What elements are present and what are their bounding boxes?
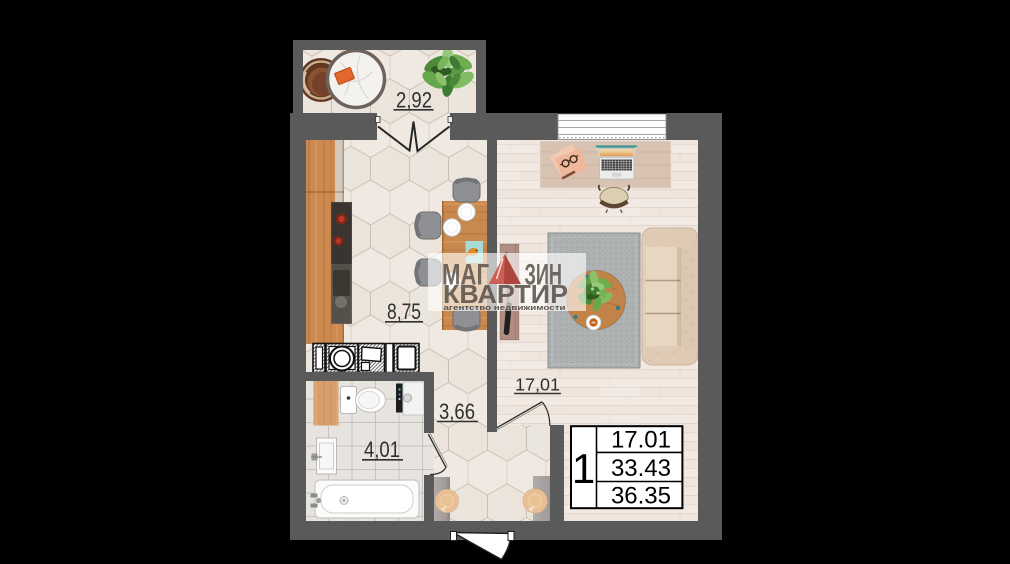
svg-text:33.43: 33.43 [611, 455, 671, 482]
svg-text:4,01: 4,01 [364, 437, 400, 462]
svg-text:17,01: 17,01 [515, 375, 560, 395]
svg-text:8,75: 8,75 [387, 299, 421, 324]
svg-text:2,92: 2,92 [396, 87, 432, 112]
svg-text:агентство недвижимости: агентство недвижимости [444, 305, 566, 312]
svg-text:1: 1 [572, 445, 595, 492]
svg-text:36.35: 36.35 [611, 483, 671, 510]
svg-text:17.01: 17.01 [611, 427, 671, 454]
svg-text:3,66: 3,66 [439, 399, 475, 424]
